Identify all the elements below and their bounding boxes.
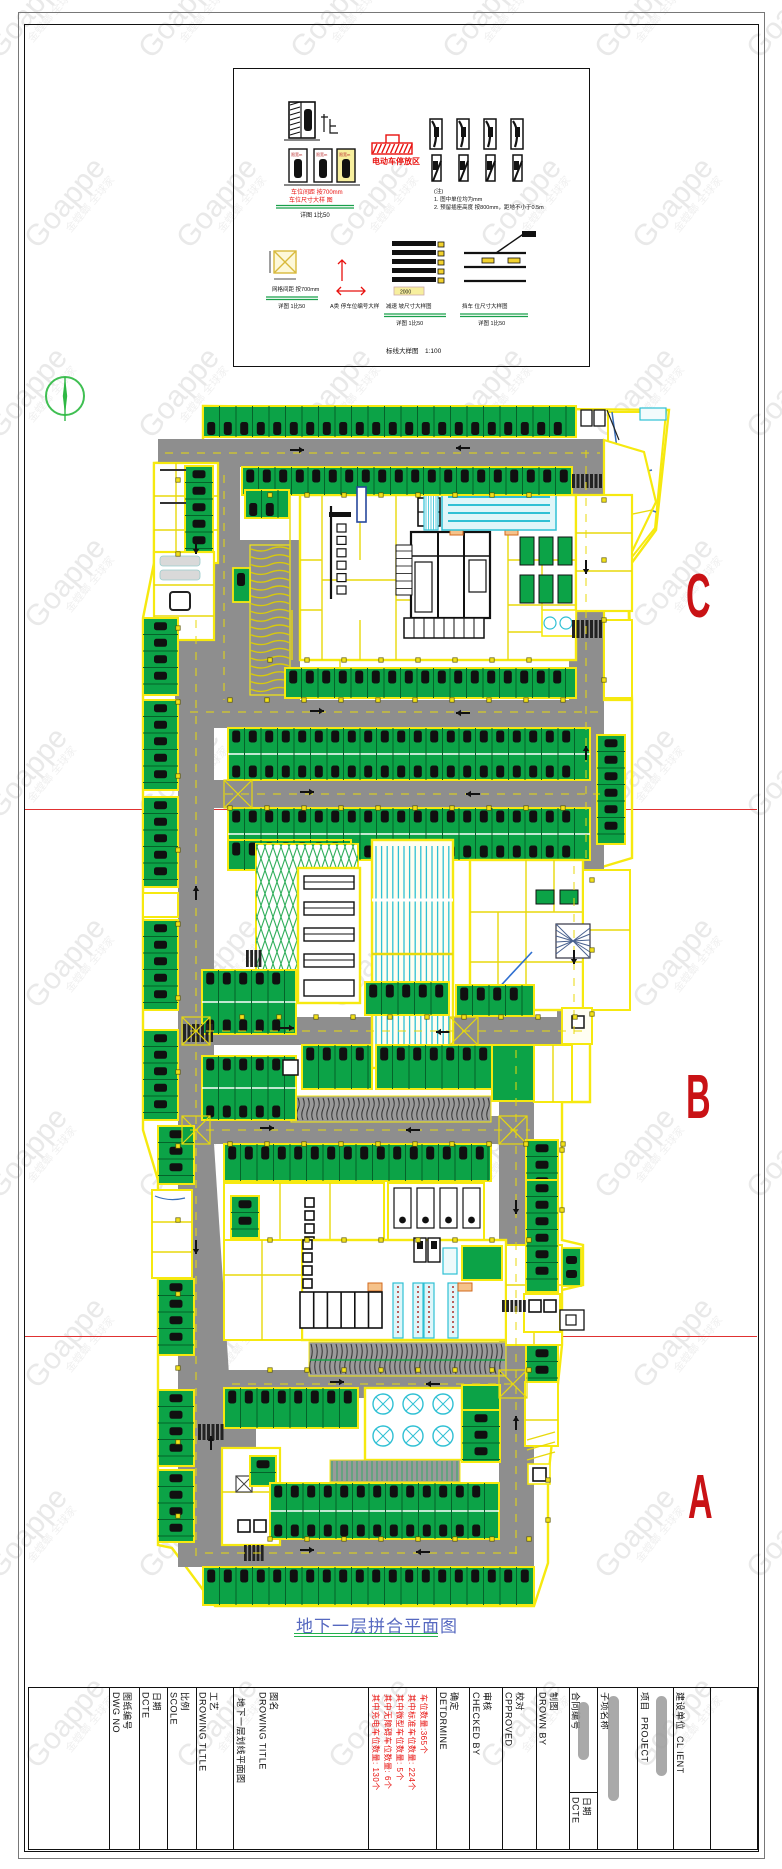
svg-text:Goappe: Goappe xyxy=(588,1862,682,1869)
svg-text:详图 1比50: 详图 1比50 xyxy=(396,319,423,327)
svg-text:Goappe: Goappe xyxy=(436,1862,530,1869)
svg-text:2000: 2000 xyxy=(400,290,411,296)
svg-text:2. 预留插座高度 按800mm，距地不小于0.5m: 2. 预留插座高度 按800mm，距地不小于0.5m xyxy=(434,203,544,211)
svg-text:详图 1比50: 详图 1比50 xyxy=(300,211,330,219)
svg-text:标线大样图 1:100: 标线大样图 1:100 xyxy=(386,346,442,355)
svg-text:(注): (注) xyxy=(434,187,443,195)
svg-text:挡车 位尺寸大样图: 挡车 位尺寸大样图 xyxy=(462,302,508,310)
svg-text:Goappe: Goappe xyxy=(778,152,782,255)
svg-text:Goappe: Goappe xyxy=(0,1862,74,1869)
svg-text:A类 停车位编号大样: A类 停车位编号大样 xyxy=(330,302,380,310)
svg-text:详图 1比50: 详图 1比50 xyxy=(478,319,505,327)
svg-text:限宽m: 限宽m xyxy=(316,151,328,157)
svg-text:车位间距 按700mm: 车位间距 按700mm xyxy=(291,188,343,196)
svg-text:Goappe: Goappe xyxy=(740,1862,782,1869)
svg-text:Goappe: Goappe xyxy=(132,1862,226,1869)
svg-text:Goappe: Goappe xyxy=(778,912,782,1015)
svg-text:车位尺寸大样 图: 车位尺寸大样 图 xyxy=(289,196,333,204)
svg-text:Goappe: Goappe xyxy=(284,1862,378,1869)
svg-text:1. 图中单位均为mm: 1. 图中单位均为mm xyxy=(434,195,483,203)
svg-text:Goappe: Goappe xyxy=(778,1672,782,1775)
svg-text:限宽m: 限宽m xyxy=(339,151,351,157)
svg-text:限宽m: 限宽m xyxy=(291,151,303,157)
svg-text:网格间距 按700mm: 网格间距 按700mm xyxy=(272,285,320,293)
svg-text:减速 坡尺寸大样图: 减速 坡尺寸大样图 xyxy=(386,302,432,310)
svg-text:Goappe: Goappe xyxy=(778,1292,782,1395)
svg-text:详图 1比50: 详图 1比50 xyxy=(278,302,305,310)
svg-text:电动车停放区: 电动车停放区 xyxy=(372,156,420,166)
svg-text:Goappe: Goappe xyxy=(778,532,782,635)
